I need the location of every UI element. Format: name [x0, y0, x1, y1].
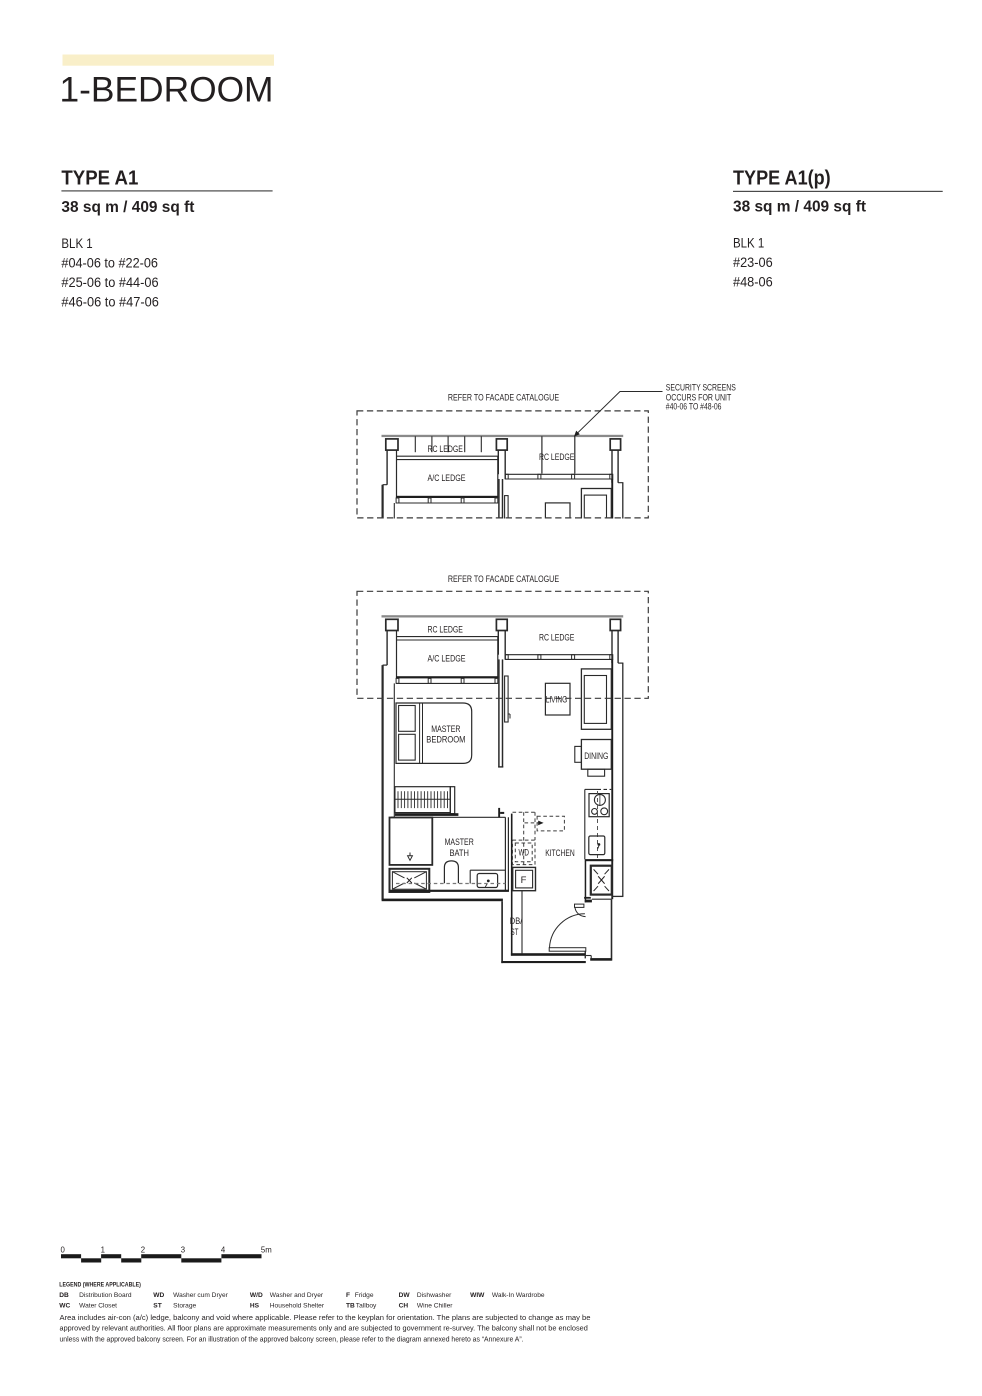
svg-text:Area includes air-con (a/c) le: Area includes air-con (a/c) ledge, balco…	[60, 1315, 591, 1322]
svg-text:SECURITY SCREENS: SECURITY SCREENS	[666, 382, 736, 392]
svg-text:1: 1	[101, 1245, 105, 1254]
svg-text:Tallboy: Tallboy	[356, 1302, 377, 1309]
svg-text:Water Closet: Water Closet	[79, 1302, 117, 1309]
svg-text:unless with the approved balco: unless with the approved balcony screen.…	[60, 1336, 524, 1343]
svg-text:#46-06 to #47-06: #46-06 to #47-06	[61, 295, 158, 310]
svg-text:Dishwasher: Dishwasher	[417, 1292, 452, 1299]
svg-text:#40-06 TO #48-06: #40-06 TO #48-06	[666, 402, 722, 412]
svg-text:38 sq m / 409 sq ft: 38 sq m / 409 sq ft	[61, 199, 194, 216]
svg-text:LEGEND (WHERE APPLICABLE): LEGEND (WHERE APPLICABLE)	[59, 1282, 141, 1289]
svg-text:Household Shelter: Household Shelter	[270, 1302, 325, 1309]
svg-text:CH: CH	[399, 1302, 409, 1309]
svg-text:LIVING: LIVING	[546, 694, 568, 705]
svg-text:WC: WC	[59, 1302, 70, 1309]
svg-text:BLK 1: BLK 1	[61, 236, 92, 251]
svg-text:Distribution Board: Distribution Board	[79, 1292, 132, 1299]
svg-text:WD: WD	[153, 1292, 164, 1299]
svg-text:F: F	[346, 1292, 350, 1299]
svg-text:REFER TO FACADE CATALOGUE: REFER TO FACADE CATALOGUE	[448, 393, 559, 403]
svg-text:Wine Chiller: Wine Chiller	[417, 1302, 453, 1309]
svg-text:#23-06: #23-06	[733, 255, 773, 270]
svg-text:4: 4	[221, 1245, 226, 1254]
svg-text:38 sq m / 409 sq ft: 38 sq m / 409 sq ft	[733, 199, 866, 216]
svg-text:HS: HS	[250, 1302, 260, 1309]
svg-text:#04-06 to #22-06: #04-06 to #22-06	[61, 256, 158, 271]
svg-text:REFER TO FACADE CATALOGUE: REFER TO FACADE CATALOGUE	[448, 574, 559, 584]
svg-text:0: 0	[61, 1245, 66, 1254]
svg-text:3: 3	[181, 1245, 185, 1254]
svg-text:DW: DW	[399, 1292, 411, 1299]
svg-text:#48-06: #48-06	[733, 274, 773, 289]
svg-text:Washer and Dryer: Washer and Dryer	[270, 1292, 324, 1299]
svg-text:Walk-In Wardrobe: Walk-In Wardrobe	[492, 1292, 545, 1299]
svg-text:5m: 5m	[261, 1245, 272, 1254]
svg-text:DB: DB	[59, 1292, 69, 1299]
svg-text:approved by relevant authoriti: approved by relevant authorities. All fl…	[60, 1326, 588, 1333]
svg-text:2: 2	[141, 1245, 145, 1254]
svg-text:ST: ST	[153, 1302, 161, 1309]
svg-text:Storage: Storage	[173, 1302, 196, 1309]
svg-text:BLK 1: BLK 1	[733, 236, 764, 251]
svg-text:1-BEDROOM: 1-BEDROOM	[60, 70, 274, 109]
svg-text:Washer cum Dryer: Washer cum Dryer	[173, 1292, 229, 1299]
svg-text:W/D: W/D	[250, 1292, 263, 1299]
svg-text:#25-06 to #44-06: #25-06 to #44-06	[61, 275, 158, 290]
svg-text:TYPE A1(p): TYPE A1(p)	[733, 168, 831, 190]
svg-text:WIW: WIW	[470, 1292, 485, 1299]
svg-text:TYPE A1: TYPE A1	[61, 168, 138, 190]
svg-text:TB: TB	[346, 1302, 355, 1309]
svg-text:Fridge: Fridge	[355, 1292, 374, 1299]
